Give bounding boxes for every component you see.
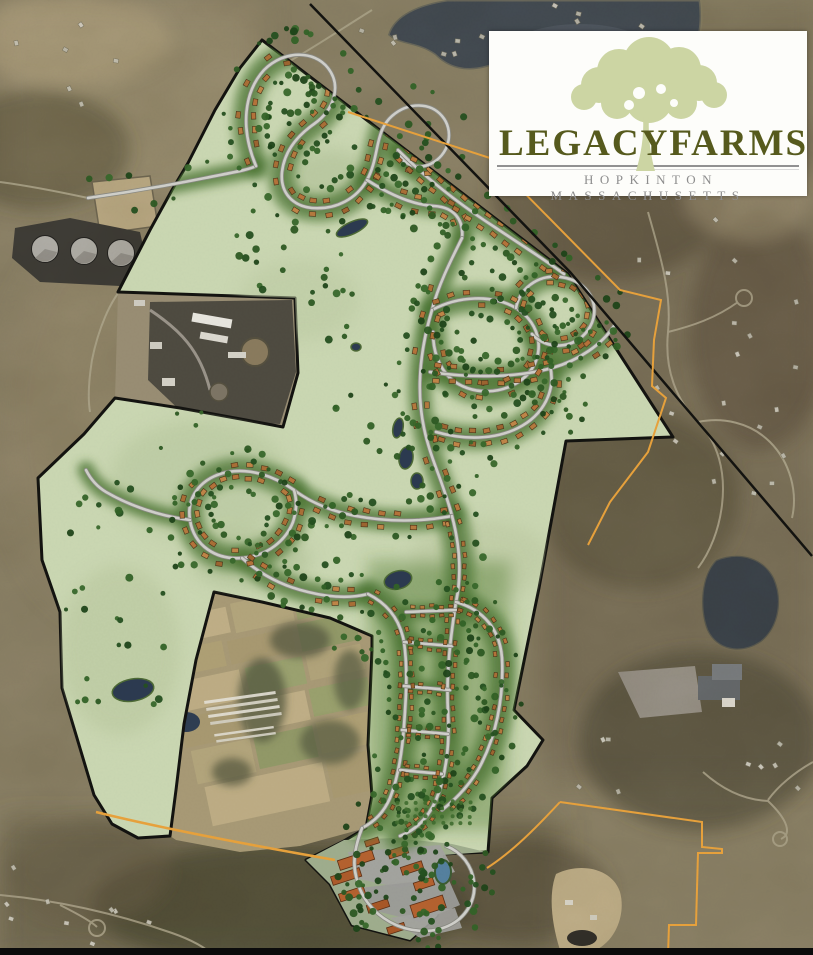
legacy-farms-logo: LEGACY FARMS HOPKINTON MASSACHUSETTS [489,31,807,196]
logo-title-right: FARMS [669,125,808,162]
logo-subtitle: HOPKINTON MASSACHUSETTS [489,172,807,204]
logo-title: LEGACY FARMS [489,125,807,162]
bottom-border-bar [0,948,813,955]
logo-title-left: LEGACY [499,125,669,162]
site-plan-screenshot: LEGACY FARMS HOPKINTON MASSACHUSETTS [0,0,813,955]
